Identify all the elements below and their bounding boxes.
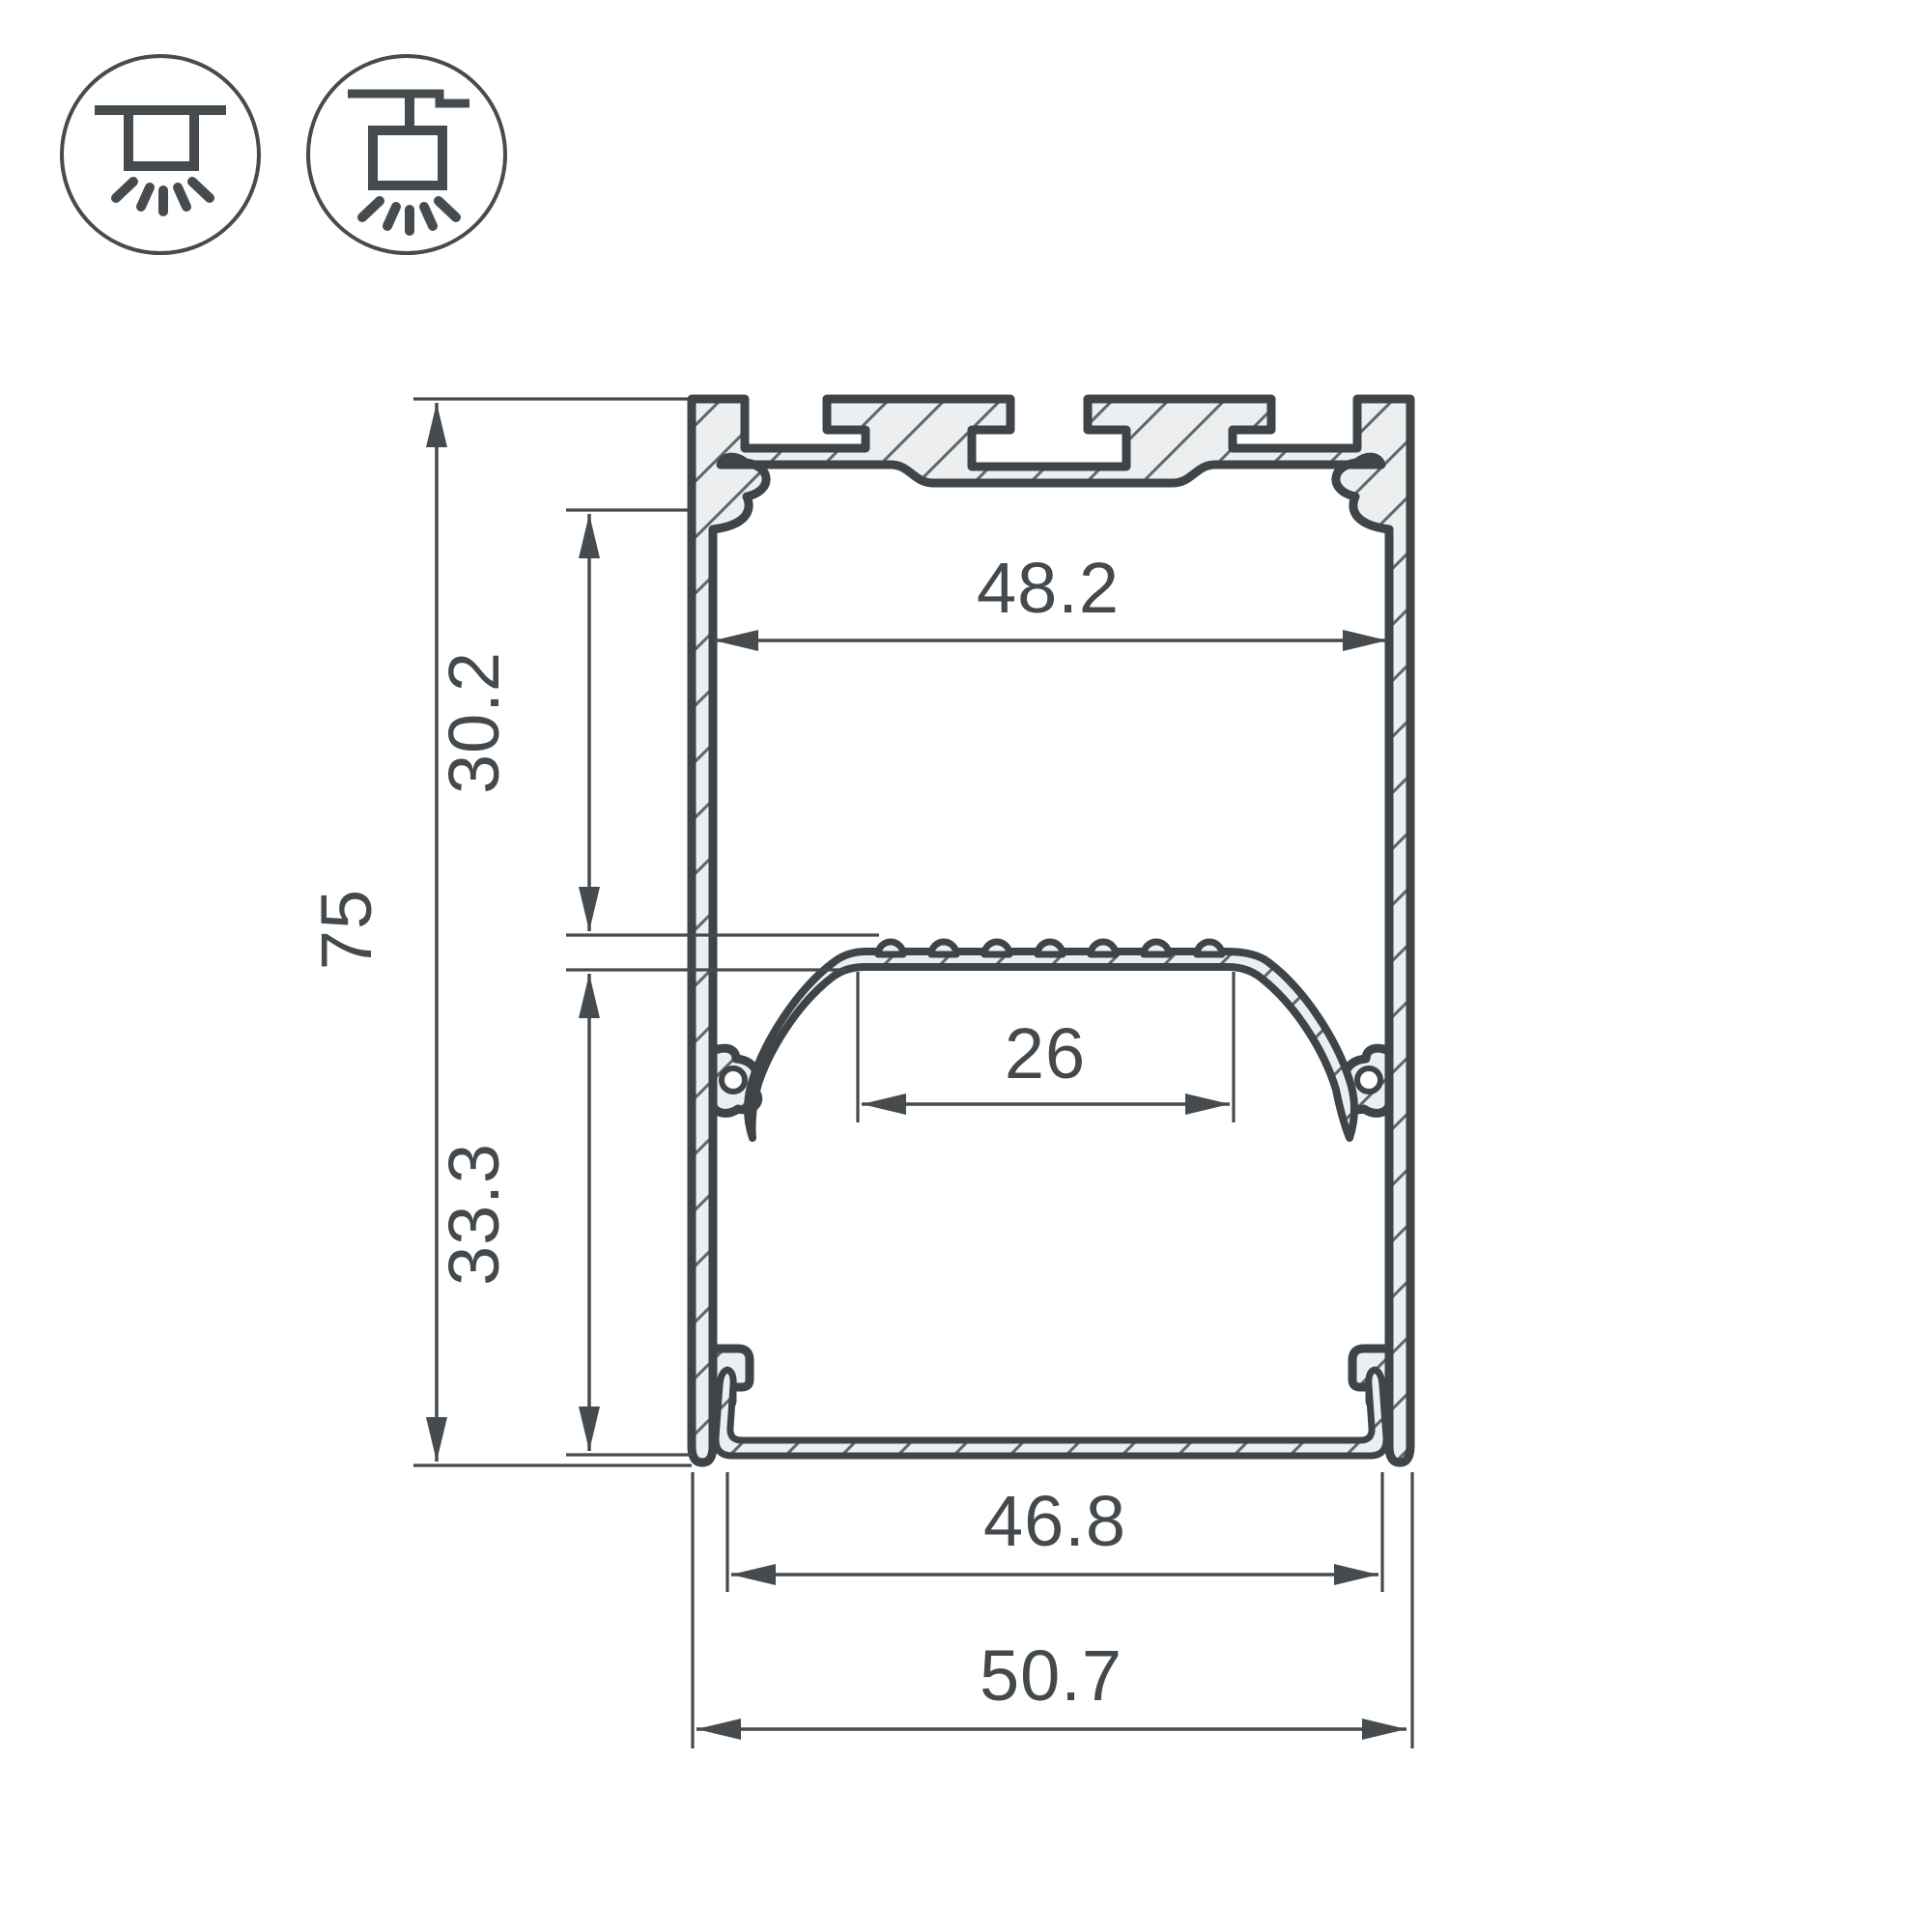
dimension-overall-width: 50.7 — [696, 1635, 1406, 1740]
light-rays-icon — [116, 182, 210, 212]
dimension-label: 46.8 — [983, 1481, 1126, 1561]
profile-dimension-drawing: 75 30.2 33.3 48.2 26 — [0, 0, 1932, 1932]
mount-type-icons — [62, 56, 505, 253]
screw-channel-left — [722, 1068, 745, 1092]
dimension-bottom-opening-width: 46.8 — [731, 1481, 1378, 1585]
extension-lines — [413, 399, 1412, 1748]
screw-channel-right — [1357, 1068, 1380, 1092]
light-rays-icon — [362, 201, 456, 231]
dimension-label: 30.2 — [434, 651, 514, 794]
dimension-label: 75 — [306, 889, 386, 970]
dimension-lower-inner-height: 33.3 — [434, 974, 600, 1451]
dimension-label: 48.2 — [977, 548, 1120, 628]
dimension-overall-height: 75 — [306, 403, 447, 1462]
surface-mount-icon — [62, 56, 259, 253]
dimension-upper-inner-height: 30.2 — [434, 514, 600, 931]
dimension-led-shelf-width: 26 — [862, 1013, 1230, 1115]
bottom-diffuser — [716, 1370, 1386, 1456]
dimension-label: 26 — [1005, 1013, 1086, 1094]
dimensions: 75 30.2 33.3 48.2 26 — [306, 399, 1412, 1748]
dimension-label: 50.7 — [980, 1635, 1122, 1716]
drawing-page: 75 30.2 33.3 48.2 26 — [0, 0, 1932, 1932]
dimension-label: 33.3 — [434, 1143, 514, 1286]
dimension-inner-top-width: 48.2 — [714, 548, 1387, 651]
pendant-mount-icon — [308, 56, 505, 253]
lens-ribs — [878, 942, 1222, 954]
